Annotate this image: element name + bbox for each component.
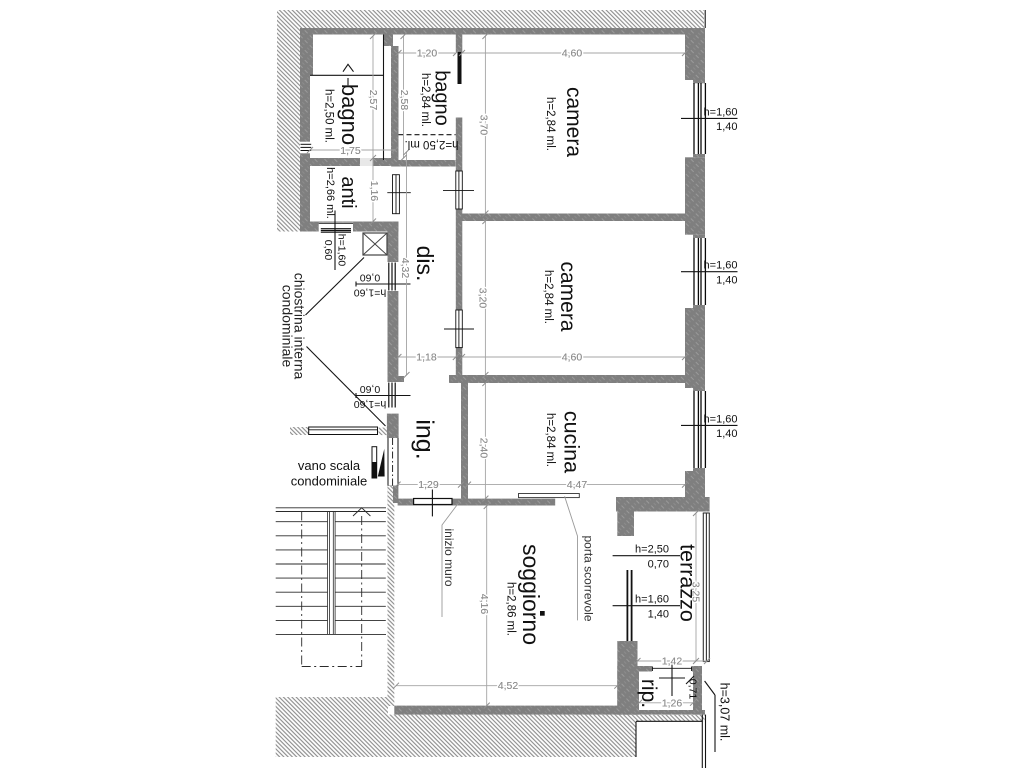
svg-text:ing.: ing. — [411, 419, 439, 459]
svg-text:condominiale: condominiale — [291, 474, 368, 489]
svg-text:h=2,84 ml.: h=2,84 ml. — [544, 413, 556, 467]
svg-text:h=1,60: h=1,60 — [704, 260, 738, 272]
svg-text:h=1,60: h=1,60 — [354, 286, 387, 298]
svg-text:h=2,84 ml.: h=2,84 ml. — [544, 97, 556, 151]
svg-text:0,60: 0,60 — [322, 240, 334, 261]
svg-text:0,60: 0,60 — [360, 383, 381, 395]
svg-text:0,60: 0,60 — [360, 271, 381, 283]
svg-text:cucina: cucina — [560, 411, 584, 473]
svg-text:dis.: dis. — [412, 246, 438, 282]
svg-text:bagno: bagno — [430, 70, 452, 126]
svg-text:3,70: 3,70 — [478, 115, 490, 136]
svg-text:1,26: 1,26 — [662, 697, 683, 709]
svg-text:1,40: 1,40 — [648, 609, 669, 621]
svg-text:1,40: 1,40 — [716, 121, 737, 133]
svg-text:h=3,07 ml.: h=3,07 ml. — [718, 683, 732, 742]
svg-text:h=1,60: h=1,60 — [336, 234, 348, 267]
svg-text:h=2,66 ml.: h=2,66 ml. — [324, 167, 336, 219]
svg-text:1,16: 1,16 — [368, 181, 380, 202]
svg-text:rip.: rip. — [637, 679, 660, 708]
svg-text:1,75: 1,75 — [340, 145, 361, 157]
svg-text:4,60: 4,60 — [562, 48, 583, 60]
svg-text:camera: camera — [562, 87, 585, 157]
svg-text:h=2,84 ml.: h=2,84 ml. — [419, 73, 431, 127]
svg-text:1,20: 1,20 — [417, 48, 438, 60]
svg-text:2,40: 2,40 — [478, 438, 490, 459]
svg-text:camera: camera — [556, 261, 579, 331]
svg-text:h=2,50 ml.: h=2,50 ml. — [404, 138, 458, 150]
svg-text:1,40: 1,40 — [716, 275, 737, 287]
svg-text:h=1,60: h=1,60 — [704, 106, 738, 118]
svg-text:3,20: 3,20 — [477, 288, 489, 309]
svg-text:h=2,84 ml.: h=2,84 ml. — [542, 270, 554, 324]
svg-text:porta scorrevole: porta scorrevole — [581, 535, 595, 621]
svg-text:soggiorno: soggiorno — [518, 544, 544, 645]
svg-text:0,70: 0,70 — [648, 559, 669, 571]
svg-text:vano scala: vano scala — [298, 458, 361, 473]
svg-text:condominiale: condominiale — [279, 285, 295, 368]
svg-text:h=2,50 ml.: h=2,50 ml. — [322, 89, 334, 143]
svg-text:1,40: 1,40 — [716, 428, 737, 440]
svg-text:h=2,86 ml.: h=2,86 ml. — [504, 582, 516, 636]
svg-text:anti: anti — [337, 176, 359, 208]
svg-text:4,47: 4,47 — [567, 479, 588, 491]
svg-text:inizio muro: inizio muro — [442, 528, 456, 586]
svg-text:h=1,60: h=1,60 — [704, 413, 738, 425]
svg-text:2,58: 2,58 — [398, 90, 410, 111]
svg-text:1,18: 1,18 — [416, 352, 437, 364]
svg-text:1,29: 1,29 — [418, 479, 439, 491]
svg-text:bagno: bagno — [337, 84, 362, 145]
svg-text:4,32: 4,32 — [399, 258, 411, 279]
svg-text:0,71: 0,71 — [687, 679, 699, 700]
svg-text:4,16: 4,16 — [478, 594, 490, 615]
svg-text:h=2,50: h=2,50 — [635, 544, 669, 556]
svg-text:4,60: 4,60 — [562, 352, 583, 364]
svg-text:h=1,60: h=1,60 — [635, 594, 669, 606]
svg-text:1,42: 1,42 — [662, 656, 683, 668]
svg-text:terrazzo: terrazzo — [676, 544, 700, 622]
svg-text:h=1,60: h=1,60 — [354, 398, 387, 410]
svg-text:4,52: 4,52 — [498, 680, 519, 692]
svg-text:2,57: 2,57 — [367, 90, 379, 111]
